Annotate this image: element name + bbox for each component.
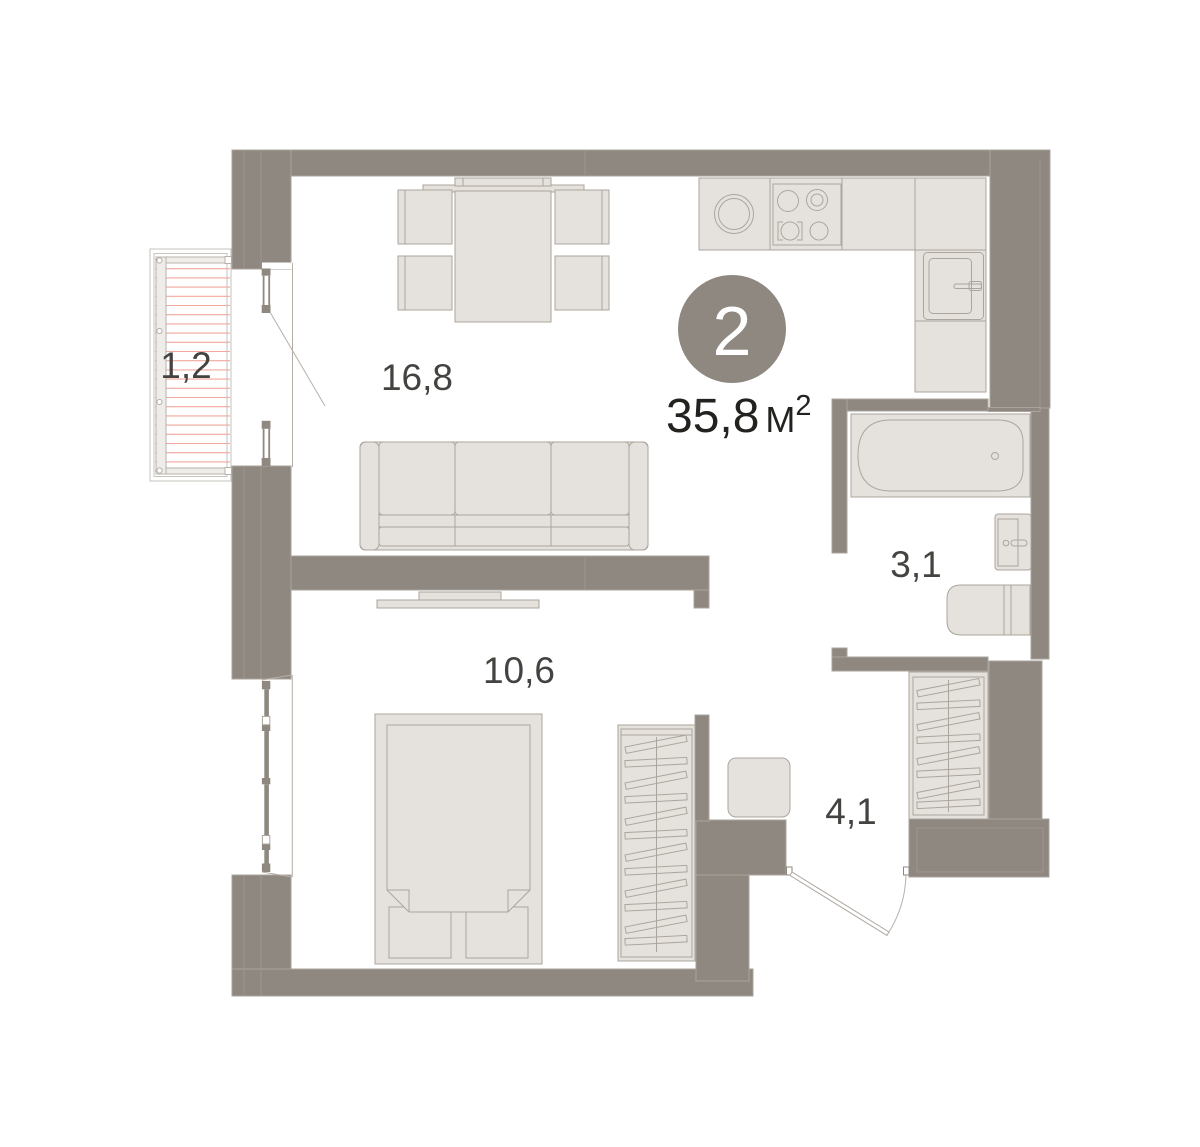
svg-text:16,8: 16,8: [381, 357, 453, 398]
svg-text:3,1: 3,1: [890, 544, 941, 585]
svg-text:10,6: 10,6: [483, 650, 555, 691]
svg-text:1,2: 1,2: [160, 345, 211, 386]
svg-text:4,1: 4,1: [825, 791, 876, 832]
svg-text:2: 2: [713, 292, 752, 370]
